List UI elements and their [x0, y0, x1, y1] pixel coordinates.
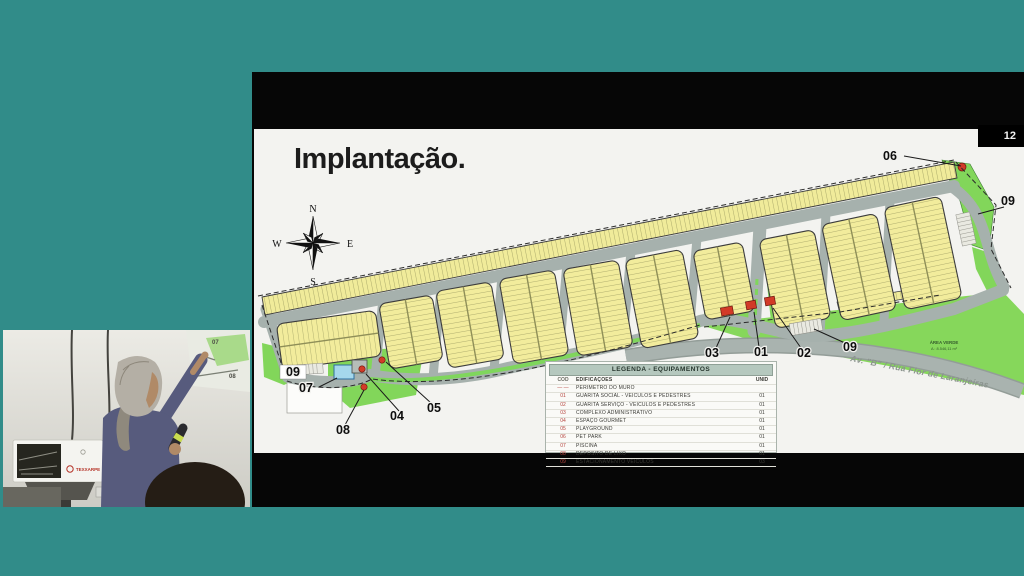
legend-cell-lname: GUARITA SOCIAL - VEÍCULOS E PEDESTRES [576, 393, 752, 400]
trash-depot-marker-icon [361, 384, 367, 390]
legend-title: LEGENDA - EQUIPAMENTOS [549, 364, 773, 376]
legend-row: 06PET PARK01 [546, 434, 776, 442]
residential-block [499, 270, 569, 364]
legend-cell-lcod: 09 [550, 459, 576, 466]
legend-cell-lname: COMPLEXO ADMINISTRATIVO [576, 410, 752, 417]
webcam-video: 07 08 TEXXARPE [3, 330, 250, 507]
compass-rose-icon: N S W E [272, 204, 353, 288]
legend-row: 08DEPÓSITO DE LIXO01 [546, 451, 776, 459]
compass-w: W [272, 239, 282, 250]
callout-label: 05 [427, 401, 441, 415]
pool-icon [334, 365, 354, 379]
legend-cell-lunid [752, 385, 772, 392]
residential-block [563, 260, 633, 356]
legend-cell-lunid: 01 [752, 426, 772, 433]
compass-e: E [347, 239, 353, 250]
pointing-hand [202, 352, 209, 359]
legend-row: 04ESPAÇO GOURMET01 [546, 418, 776, 426]
legend-header-row: CÓD EDIFICAÇÕES UNID [546, 377, 776, 385]
legend-cell-lcod: 08 [550, 451, 576, 458]
legend-cell-lcod: 03 [550, 410, 576, 417]
legend-cell-lcod: 05 [550, 426, 576, 433]
green-area-label-line2: A : 8.546,11 m² [931, 346, 958, 351]
legend-cell-lcod: 01 [550, 393, 576, 400]
legend-cell-lcod: 06 [550, 434, 576, 441]
green-area-label-line1: ÁREA VERDE [930, 340, 959, 345]
social-gatehouse-icon [745, 300, 756, 310]
residential-block [436, 282, 505, 369]
compass-n: N [309, 204, 316, 215]
legend-cell-lunid: 01 [752, 393, 772, 400]
legend-row: 07PISCINA01 [546, 443, 776, 451]
legend-cell-lname: GUARITA SERVIÇO - VEÍCULOS E PEDESTRES [576, 402, 752, 409]
device-brand-label: TEXXARPE [76, 467, 100, 472]
video-frame: { "page_number": "12", "slide": { "title… [0, 0, 1024, 576]
legend-cell-lname: PET PARK [576, 434, 752, 441]
legend-cell-lcod: 02 [550, 402, 576, 409]
compass-s: S [310, 277, 316, 288]
projected-label-08: 08 [229, 374, 236, 380]
legend-cell-lname: PERÍMETRO DO MURO [576, 385, 752, 392]
callout-label: 09 [843, 340, 857, 354]
page-number: 12 [978, 125, 1024, 147]
legend-cell-lunid: 01 [752, 418, 772, 425]
pet-park-marker-icon [958, 163, 966, 171]
playground-marker-icon [379, 357, 385, 363]
callout-label: 01 [754, 345, 768, 359]
legend-cell-lunid: 01 [752, 434, 772, 441]
callout-label: 03 [705, 346, 719, 360]
callout-label: 04 [390, 409, 404, 423]
legend-cell-lunid: 03 [752, 459, 772, 466]
legend-cell-lcod: — — [550, 385, 576, 392]
legend-row: 03COMPLEXO ADMINISTRATIVO01 [546, 410, 776, 418]
residential-block [625, 249, 699, 348]
admin-building-icon [720, 306, 733, 316]
legend-row: 09ESTACIONAMENTO VEÍCULOS03 [546, 459, 776, 467]
callout-label: 09 [1001, 194, 1015, 208]
legend-table: LEGENDA - EQUIPAMENTOS CÓD EDIFICAÇÕES U… [545, 361, 777, 453]
legend-col-cod: CÓD [550, 377, 576, 384]
projected-label-07: 07 [212, 340, 219, 346]
webcam-scene: 07 08 TEXXARPE [3, 330, 250, 507]
legend-cell-lcod: 07 [550, 443, 576, 450]
legend-cell-lname: ESTACIONAMENTO VEÍCULOS [576, 459, 752, 466]
legend-col-unid: UNID [752, 377, 772, 384]
legend-cell-lcod: 04 [550, 418, 576, 425]
legend-row: 01GUARITA SOCIAL - VEÍCULOS E PEDESTRES0… [546, 393, 776, 401]
legend-cell-lname: DEPÓSITO DE LIXO [576, 451, 752, 458]
presentation-slide: Implantação. [254, 129, 1024, 453]
gourmet-marker-icon [359, 366, 365, 372]
legend-cell-lname: PLAYGROUND [576, 426, 752, 433]
legend-row: 02GUARITA SERVIÇO - VEÍCULOS E PEDESTRES… [546, 402, 776, 410]
callout-leader-line [904, 156, 961, 166]
service-gatehouse-icon [764, 296, 775, 306]
callout-label: 09 [286, 365, 300, 379]
legend-row: — —PERÍMETRO DO MURO [546, 385, 776, 393]
legend-cell-lunid: 01 [752, 402, 772, 409]
legend-cell-lunid: 01 [752, 410, 772, 417]
legend-col-edificacoes: EDIFICAÇÕES [576, 377, 752, 384]
legend-cell-lname: ESPAÇO GOURMET [576, 418, 752, 425]
mic-hand [169, 443, 181, 455]
callout-label: 07 [299, 381, 313, 395]
callout-label: 06 [883, 149, 897, 163]
legend-cell-lname: PISCINA [576, 443, 752, 450]
callout-label: 02 [797, 346, 811, 360]
callout-label: 08 [336, 423, 350, 437]
legend-cell-lunid: 01 [752, 443, 772, 450]
device-screen [17, 444, 61, 478]
legend-cell-lunid: 01 [752, 451, 772, 458]
residential-block [379, 295, 444, 369]
legend-row: 05PLAYGROUND01 [546, 426, 776, 434]
